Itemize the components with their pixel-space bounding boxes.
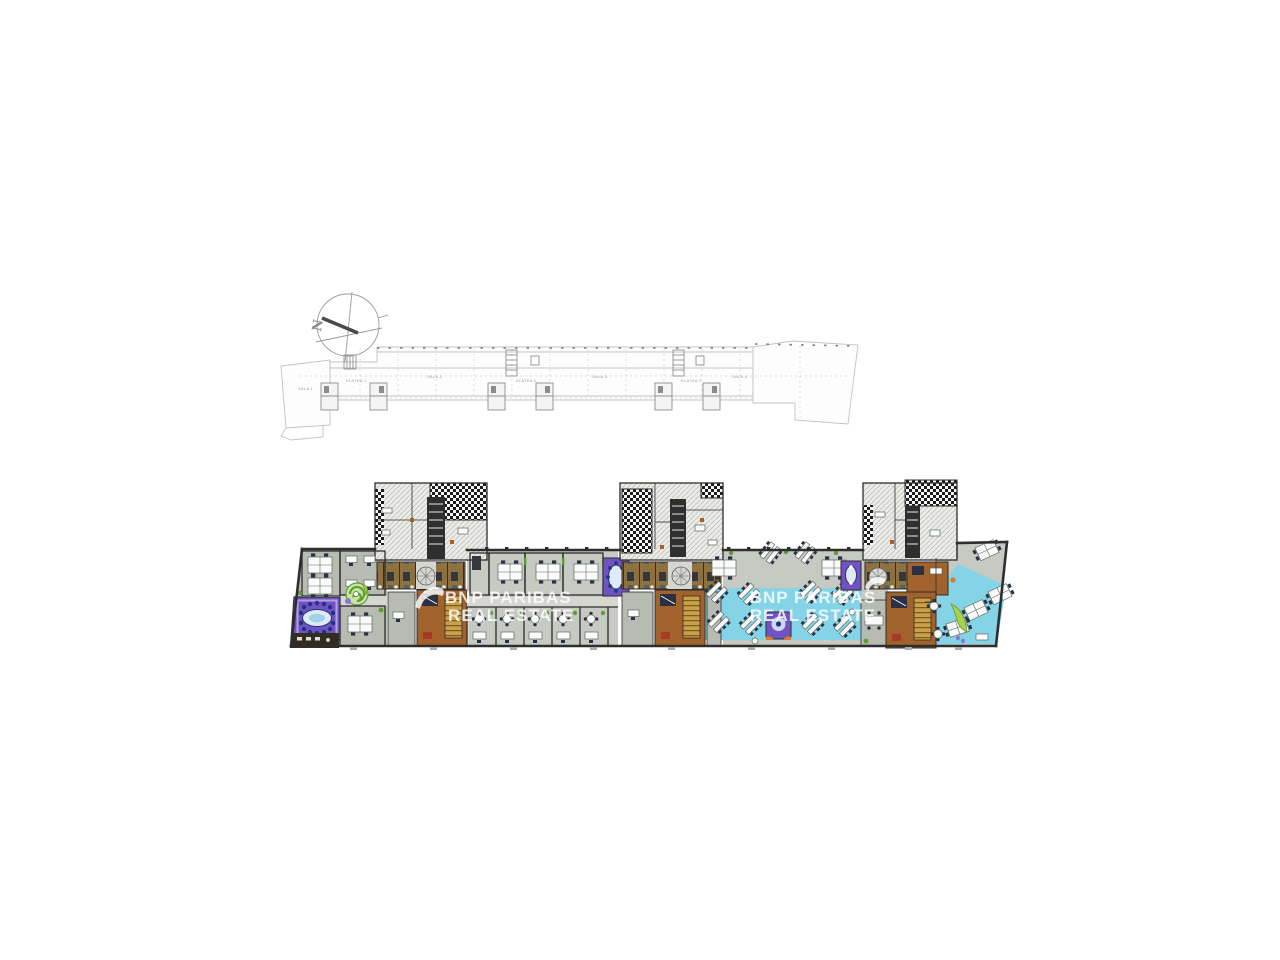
upper-label-7: SALA 4	[732, 374, 748, 379]
watermark2-line1: BNP PARIBAS	[750, 588, 877, 607]
upper-floor-plan: SALA 1 KLATKA 1 SALA 2 KLATKA 2 SALA 3 K…	[281, 341, 858, 440]
tower-2	[620, 483, 723, 560]
tower-3-roof-hatch	[905, 480, 957, 506]
phone-room	[841, 561, 861, 590]
upper-label-5: SALA 3	[592, 374, 608, 379]
watermark-line2: REAL ESTATE	[448, 606, 574, 625]
main-floor-plan: BNP PARIBAS REAL ESTATE BNP PARIBAS REAL…	[290, 480, 1015, 650]
upper-label-1: SALA 1	[298, 386, 314, 391]
watermark2-line2: REAL ESTATE	[750, 606, 876, 625]
floor-plan-page: SALA 1 KLATKA 1 SALA 2 KLATKA 2 SALA 3 K…	[0, 0, 1280, 960]
tower-2-roof-hatch	[622, 489, 652, 553]
tower-3-stair-shaft	[905, 506, 920, 558]
spiral-stair-2	[672, 567, 690, 585]
compass: N	[310, 292, 388, 362]
facade-nubs	[350, 647, 962, 650]
spiral-stair-1	[417, 567, 435, 585]
compass-needle	[322, 318, 358, 333]
tower-2-stair-shaft	[670, 499, 686, 557]
floor-plan-image: SALA 1 KLATKA 1 SALA 2 KLATKA 2 SALA 3 K…	[0, 0, 1280, 960]
watermark-line1: BNP PARIBAS	[445, 588, 572, 607]
upper-label-6: KLATKA 3	[681, 378, 702, 383]
upper-label-3: SALA 2	[427, 374, 443, 379]
upper-label-2: KLATKA 1	[346, 378, 367, 383]
upper-label-4: KLATKA 2	[516, 378, 537, 383]
tower-3	[863, 480, 957, 560]
green-swirl-feature	[345, 583, 368, 605]
tower-1	[375, 483, 487, 560]
